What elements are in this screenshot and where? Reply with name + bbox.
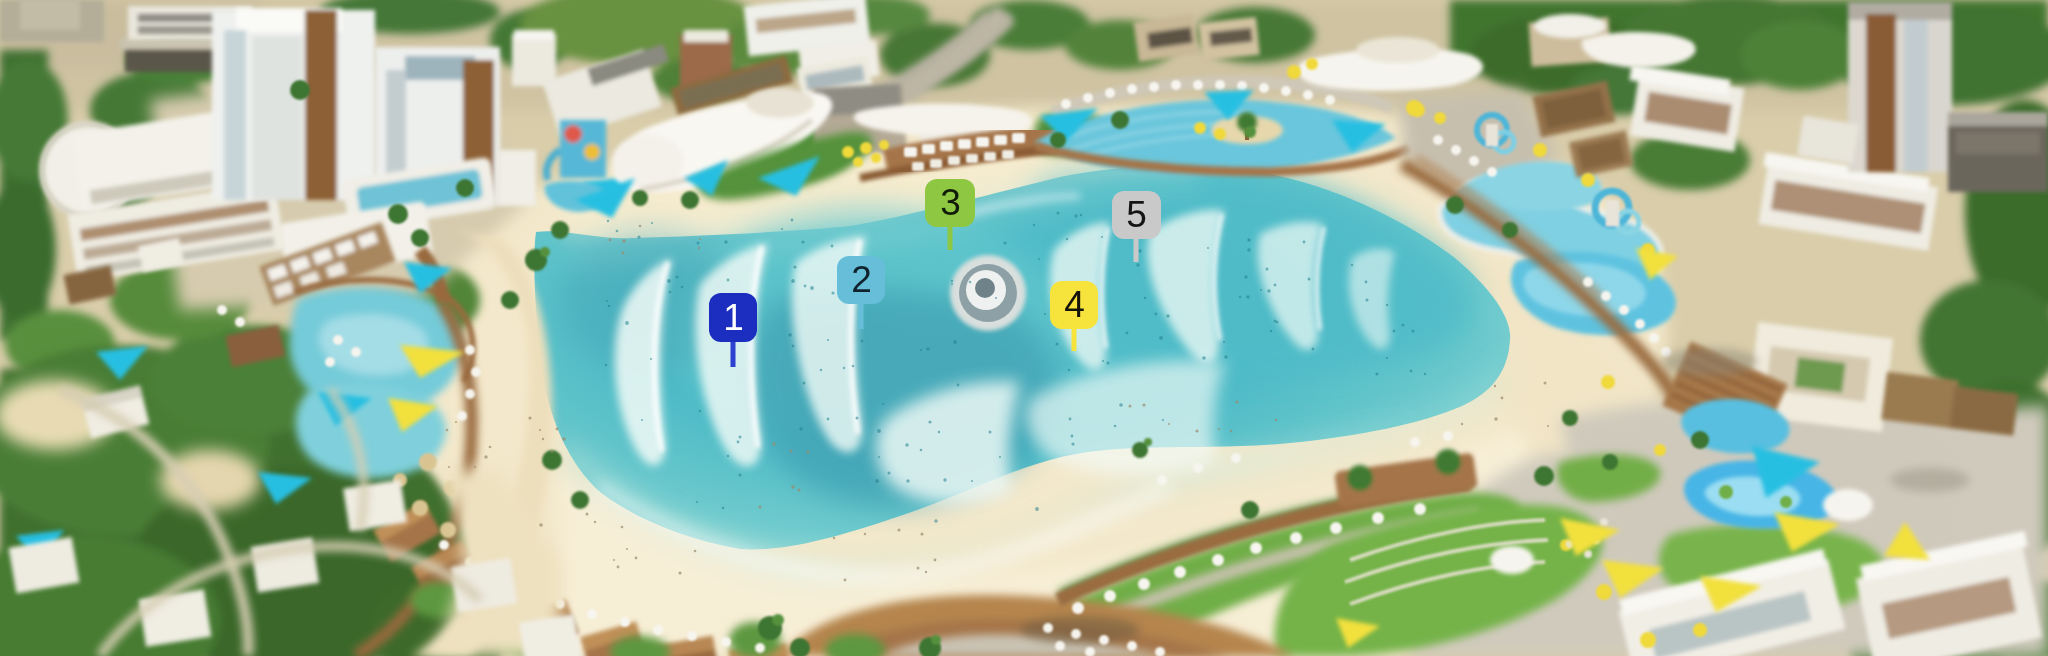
svg-text:1: 1 bbox=[723, 297, 744, 338]
svg-text:5: 5 bbox=[1126, 194, 1147, 235]
svg-text:2: 2 bbox=[851, 259, 872, 300]
svg-text:3: 3 bbox=[940, 182, 961, 223]
svg-text:4: 4 bbox=[1064, 284, 1085, 325]
